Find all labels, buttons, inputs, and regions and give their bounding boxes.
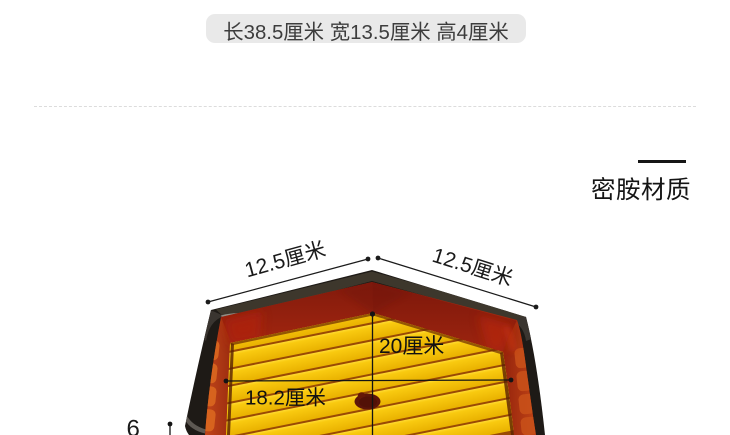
svg-text:18.2厘米: 18.2厘米	[245, 387, 326, 410]
svg-text:12.5厘米: 12.5厘米	[242, 238, 328, 282]
svg-text:6: 6	[127, 416, 140, 435]
svg-text:20厘米: 20厘米	[379, 335, 444, 358]
svg-text:12.5厘米: 12.5厘米	[429, 244, 515, 291]
